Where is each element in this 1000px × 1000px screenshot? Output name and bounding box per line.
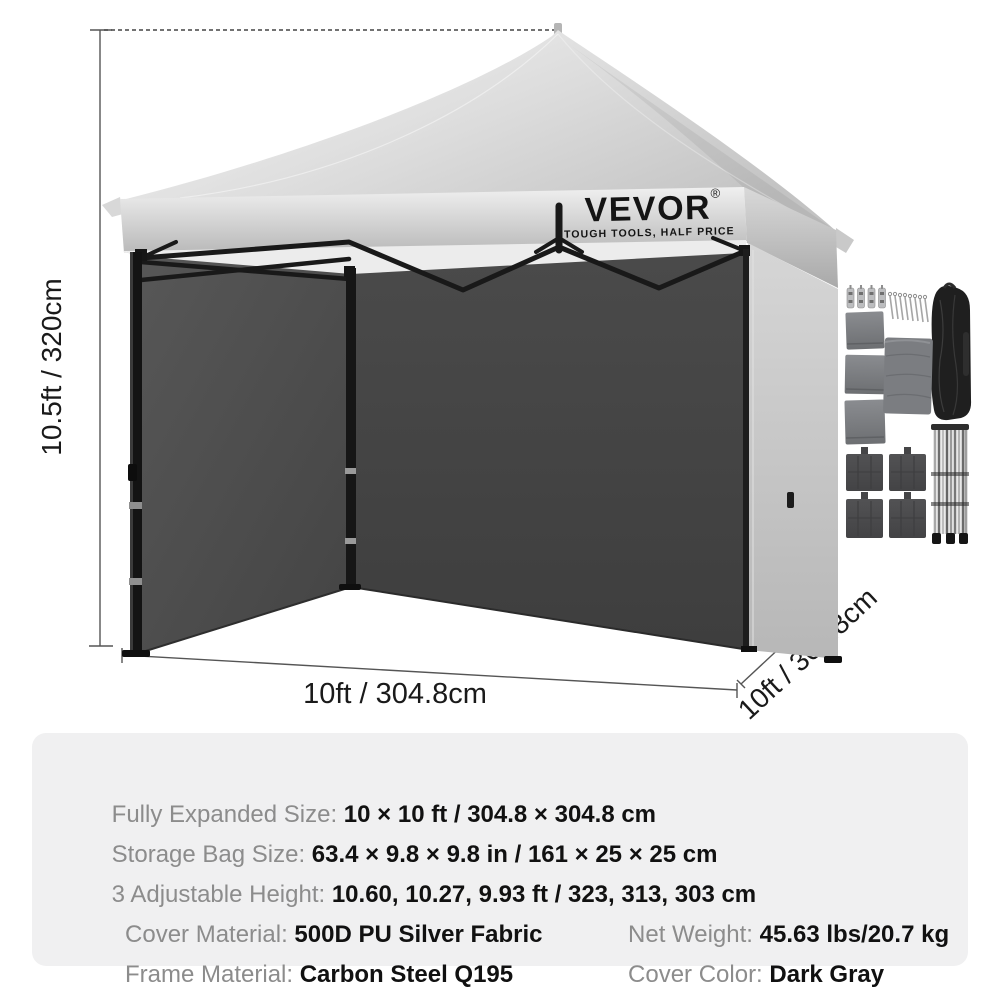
- spec-value: Carbon Steel Q195: [300, 961, 513, 988]
- spec-row-cover-color: Cover Color: Dark Gray: [588, 915, 968, 955]
- left-sidewall-interior: [136, 256, 351, 654]
- width-dimension-label: 10ft / 304.8cm: [303, 678, 487, 710]
- brand-logo-text: VEVOR: [584, 189, 711, 230]
- back-left-foot: [339, 584, 361, 590]
- weight-bags-icon: [846, 447, 926, 538]
- storage-bag-icon: [931, 284, 971, 420]
- spec-panel: Fully Expanded Size: 10 × 10 ft / 304.8 …: [32, 733, 968, 966]
- accessories-panel: [844, 284, 971, 544]
- spec-grid: Cover Material: 500D PU Silver Fabric Ne…: [85, 875, 968, 955]
- folded-canopy-icon: [883, 337, 933, 414]
- back-sidewall-interior: [351, 253, 743, 649]
- sidewall-strap: [787, 492, 794, 508]
- spec-row-expanded-size: Fully Expanded Size: 10 × 10 ft / 304.8 …: [85, 755, 968, 795]
- spec-label: Cover Color:: [628, 961, 769, 988]
- folded-frame-icon: [931, 424, 969, 544]
- left-corner-flap: [102, 197, 123, 217]
- canopy-tent: VEVOR ® TOUGH TOOLS, HALF PRICE: [102, 23, 854, 663]
- spec-label: Fully Expanded Size:: [112, 801, 344, 828]
- brand-logo: VEVOR ® TOUGH TOOLS, HALF PRICE: [563, 185, 735, 241]
- spec-label: Frame Material:: [125, 961, 300, 988]
- front-right-leg: [743, 249, 749, 650]
- back-right-foot: [824, 656, 842, 663]
- spec-row-cover-material: Cover Material: 500D PU Silver Fabric: [85, 875, 588, 915]
- right-sidewall-exterior: [748, 243, 838, 659]
- spec-label: Storage Bag Size:: [112, 841, 312, 868]
- spec-row-frame-material: Frame Material: Carbon Steel Q195: [85, 915, 588, 955]
- tent-stakes-icon: [888, 292, 928, 322]
- folded-sidewalls-icon: [844, 311, 885, 444]
- registered-mark: ®: [710, 186, 720, 201]
- spec-row-net-weight: Net Weight: 45.63 lbs/20.7 kg: [588, 875, 968, 915]
- rope-tensioners-icon: [847, 285, 886, 308]
- product-infographic: 10.5ft / 320cm 10ft / 304.8cm 10ft / 304…: [0, 0, 1000, 1000]
- spec-value: 63.4 × 9.8 × 9.8 in / 161 × 25 × 25 cm: [312, 841, 718, 868]
- spec-value: Dark Gray: [769, 961, 884, 988]
- spec-value: 10 × 10 ft / 304.8 × 304.8 cm: [344, 801, 656, 828]
- height-dimension-label: 10.5ft / 320cm: [36, 278, 67, 455]
- tent-illustration: 10.5ft / 320cm 10ft / 304.8cm 10ft / 304…: [0, 0, 1000, 735]
- height-adjust-clip: [128, 464, 137, 481]
- right-corner-flap: [836, 228, 854, 253]
- front-left-foot: [122, 650, 150, 657]
